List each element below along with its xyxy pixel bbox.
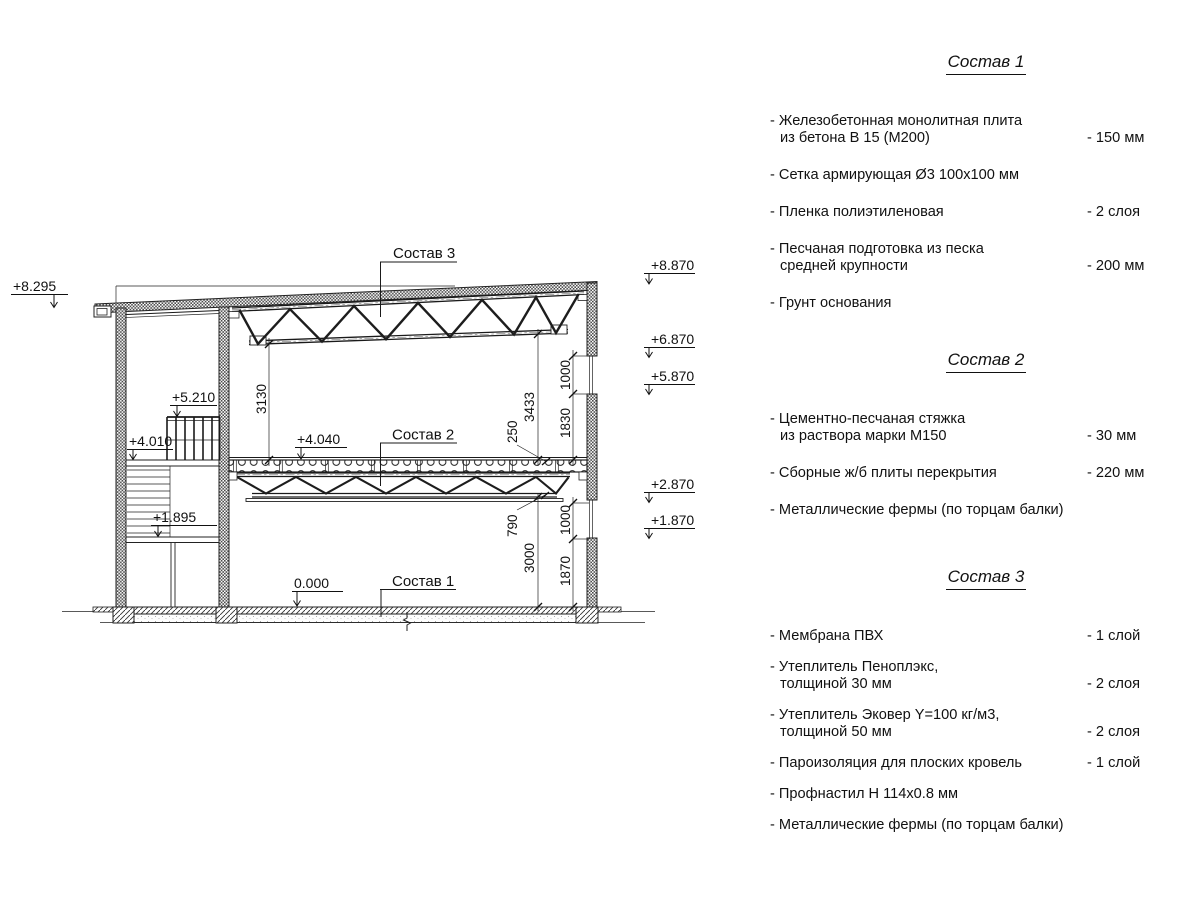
material-value: - 2 слоя xyxy=(1087,676,1140,693)
elevation-mark-5210: +5.210 xyxy=(170,389,217,417)
material-item: - Металлические фермы (по торцам балки) xyxy=(770,502,1162,519)
eave-channel xyxy=(94,306,111,317)
composition-1: Состав 1 - Железобетонная монолитная пли… xyxy=(770,52,1162,332)
ground-floor xyxy=(62,607,655,631)
dimension-3000: 3000 xyxy=(522,493,542,611)
railing xyxy=(167,417,220,460)
composition-2: Состав 2 - Цементно-песчаная стяжка из р… xyxy=(770,350,1162,539)
material-item: - Сетка армирующая Ø3 100x100 мм xyxy=(770,167,1162,184)
material-item: - Утеплитель Эковер Y=100 кг/м3, толщино… xyxy=(770,707,1162,741)
elevation-label: +1.870 xyxy=(651,512,694,528)
floor-slab xyxy=(229,458,587,473)
elevation-mark-5870: +5.870 xyxy=(644,368,695,395)
material-value: - 2 слоя xyxy=(1087,204,1140,221)
composition-title-text: Состав 3 xyxy=(946,567,1027,590)
material-value: - 2 слоя xyxy=(1087,724,1140,741)
landing-lower xyxy=(126,537,219,543)
material-value: - 30 мм xyxy=(1087,428,1136,445)
elevation-mark-2870: +2.870 xyxy=(644,476,695,503)
elevation-label: +5.210 xyxy=(172,389,215,405)
elevation-mark-1895: +1.895 xyxy=(151,509,217,537)
callout-label: Состав 1 xyxy=(392,573,454,590)
drawing-sheet: Состав 3 Состав 2 Состав 1 +8.295 +5.210… xyxy=(0,0,1200,900)
dimension-label: 250 xyxy=(505,420,520,443)
material-item: - Цементно-песчаная стяжка из раствора м… xyxy=(770,411,1162,445)
floor-truss xyxy=(229,472,587,502)
dimension-3130: 3130 xyxy=(254,338,273,466)
dimension-chain-lower: 1000 1870 xyxy=(558,497,589,611)
elevation-label: 0.000 xyxy=(294,575,329,591)
dimension-label: 3000 xyxy=(522,543,537,573)
elevation-label: +1.895 xyxy=(153,509,196,525)
composition-title-text: Состав 2 xyxy=(946,350,1027,373)
elevation-mark-6870: +6.870 xyxy=(644,331,695,358)
material-name: - Пленка полиэтиленовая xyxy=(770,204,1084,221)
composition-title-text: Состав 1 xyxy=(946,52,1027,75)
elevation-mark-1870: +1.870 xyxy=(644,512,695,539)
material-value: - 150 мм xyxy=(1087,130,1144,147)
material-item: - Мембрана ПВХ - 1 слой xyxy=(770,628,1162,645)
composition-1-title: Состав 1 xyxy=(770,52,1162,75)
dimension-250: 250 xyxy=(505,420,550,465)
elevation-label: +8.295 xyxy=(13,278,56,294)
dimension-label: 1830 xyxy=(558,408,573,438)
material-item: - Пленка полиэтиленовая - 2 слоя xyxy=(770,204,1162,221)
elevation-mark-4040: +4.040 xyxy=(295,431,347,459)
elevation-label: +4.040 xyxy=(297,431,340,447)
material-value: - 200 мм xyxy=(1087,258,1144,275)
material-name: - Сетка армирующая Ø3 100x100 мм xyxy=(770,167,1084,184)
dimension-3433: 3433 xyxy=(522,329,542,466)
material-name: - Утеплитель Пеноплэкс, xyxy=(770,659,1084,676)
dimension-label: 1870 xyxy=(558,556,573,586)
material-name: - Сборные ж/б плиты перекрытия xyxy=(770,465,1084,482)
right-wall xyxy=(587,283,597,607)
material-name: - Цементно-песчаная стяжка xyxy=(770,411,1084,428)
dimension-label: 790 xyxy=(505,514,520,537)
material-item: - Профнастил Н 114x0.8 мм xyxy=(770,786,1162,803)
material-name: - Утеплитель Эковер Y=100 кг/м3, xyxy=(770,707,1084,724)
material-name: - Мембрана ПВХ xyxy=(770,628,1084,645)
material-value: - 1 слой xyxy=(1087,628,1140,645)
material-name: - Песчаная подготовка из песка xyxy=(770,241,1084,258)
dimension-label: 3433 xyxy=(522,392,537,422)
material-value: - 1 слой xyxy=(1087,755,1140,772)
material-name: - Металлические фермы (по торцам балки) xyxy=(770,817,1084,834)
material-name: - Профнастил Н 114x0.8 мм xyxy=(770,786,1084,803)
material-value: - 220 мм xyxy=(1087,465,1144,482)
elevation-mark-0000: 0.000 xyxy=(292,575,343,606)
elevation-label: +4.010 xyxy=(129,433,172,449)
window-lower xyxy=(590,500,593,538)
material-item: - Грунт основания xyxy=(770,295,1162,312)
material-name: - Пароизоляция для плоских кровель xyxy=(770,755,1084,772)
composition-3-title: Состав 3 xyxy=(770,567,1162,590)
material-name: толщиной 50 мм xyxy=(780,724,1084,741)
material-name: средней крупности xyxy=(780,258,1084,275)
callout-sostav-3: Состав 3 xyxy=(380,245,457,317)
landing-upper xyxy=(126,460,219,466)
dimension-label: 1000 xyxy=(558,360,573,390)
material-name: - Металлические фермы (по торцам балки) xyxy=(770,502,1084,519)
elevation-label: +5.870 xyxy=(651,368,694,384)
material-item: - Утеплитель Пеноплэкс, толщиной 30 мм -… xyxy=(770,659,1162,693)
material-name: из бетона В 15 (М200) xyxy=(780,130,1084,147)
elevation-mark-8870: +8.870 xyxy=(644,257,695,284)
landing-support-wall xyxy=(171,543,175,608)
callout-label: Состав 2 xyxy=(392,427,454,444)
material-item: - Металлические фермы (по торцам балки) xyxy=(770,817,1162,834)
elevation-label: +6.870 xyxy=(651,331,694,347)
material-item: - Железобетонная монолитная плита из бет… xyxy=(770,113,1162,147)
dimension-label: 1000 xyxy=(558,505,573,535)
material-item: - Пароизоляция для плоских кровель - 1 с… xyxy=(770,755,1162,772)
dimension-label: 3130 xyxy=(254,384,269,414)
material-name: - Железобетонная монолитная плита xyxy=(770,113,1084,130)
dimension-chain-upper: 1000 1830 xyxy=(558,350,589,466)
middle-wall xyxy=(219,307,229,607)
elevation-mark-8295: +8.295 xyxy=(11,278,68,308)
material-name: толщиной 30 мм xyxy=(780,676,1084,693)
window-upper xyxy=(590,356,593,394)
elevation-mark-4010: +4.010 xyxy=(127,433,173,460)
material-name: из раствора марки М150 xyxy=(780,428,1084,445)
composition-3: Состав 3 - Мембрана ПВХ - 1 слой - Утепл… xyxy=(770,567,1162,848)
composition-2-title: Состав 2 xyxy=(770,350,1162,373)
material-item: - Сборные ж/б плиты перекрытия - 220 мм xyxy=(770,465,1162,482)
building-section-drawing: Состав 3 Состав 2 Состав 1 +8.295 +5.210… xyxy=(0,0,720,660)
stair-flight xyxy=(127,466,170,537)
callout-label: Состав 3 xyxy=(393,245,455,262)
material-item: - Песчаная подготовка из песка средней к… xyxy=(770,241,1162,275)
elevation-label: +2.870 xyxy=(651,476,694,492)
material-name: - Грунт основания xyxy=(770,295,1084,312)
elevation-label: +8.870 xyxy=(651,257,694,273)
left-wall xyxy=(116,308,126,607)
roof-slab xyxy=(95,282,597,318)
